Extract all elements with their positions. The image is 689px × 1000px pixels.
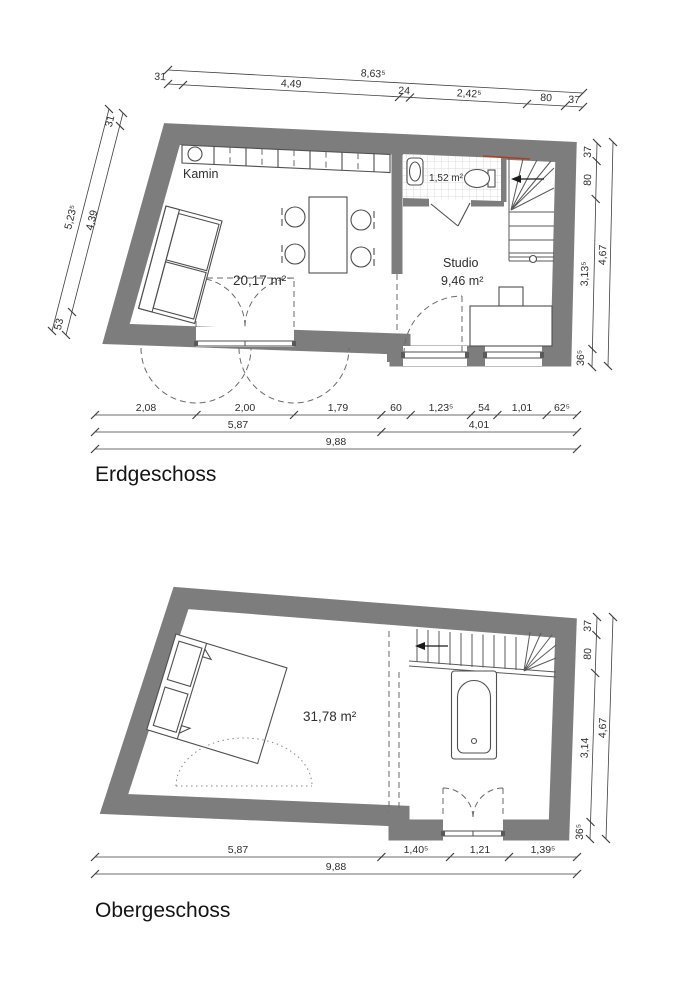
floor-plan-page: Kamin 20,17 m² Studio 9,46 m² 1,52 m² 8,… bbox=[0, 0, 689, 1000]
og-bathtub bbox=[452, 671, 497, 759]
room-label-bath-area: 1,52 m² bbox=[429, 173, 464, 184]
dim-label: 1,39⁵ bbox=[531, 844, 556, 856]
dim-label: 9,88 bbox=[326, 436, 347, 448]
floor-plan-drawing: Kamin 20,17 m² Studio 9,46 m² 1,52 m² 8,… bbox=[0, 0, 689, 1000]
dim-label: 37 bbox=[582, 620, 594, 632]
dim-label: 1,23⁵ bbox=[429, 402, 454, 414]
dim-label: 2,42⁵ bbox=[456, 87, 481, 100]
room-label-living-area: 20,17 m² bbox=[233, 273, 287, 288]
eg-dim-chain-bottom: 2,08 2,00 1,79 60 1,23⁵ 54 1,01 62⁵ 5,87… bbox=[91, 402, 581, 453]
obergeschoss-plan: 31,78 m² 37 80 3,14 4,67 36⁵ 5,87 1,40⁵ … bbox=[91, 598, 617, 922]
dim-label: 31 bbox=[103, 114, 118, 128]
dim-label: 5,87 bbox=[228, 419, 249, 431]
dim-label: 31 bbox=[154, 71, 166, 84]
dim-label: 5,23⁵ bbox=[62, 204, 80, 231]
dim-label: 54 bbox=[478, 402, 490, 414]
dim-label: 4,67 bbox=[597, 717, 610, 738]
room-label-og-area: 31,78 m² bbox=[303, 709, 357, 724]
eg-dim-chain-right: 37 80 3,13⁵ 4,67 36⁵ bbox=[575, 138, 617, 371]
dim-label: 9,88 bbox=[326, 861, 347, 873]
dining-table bbox=[309, 197, 347, 273]
dim-label: 2,00 bbox=[235, 402, 256, 414]
erdgeschoss-plan: Kamin 20,17 m² Studio 9,46 m² 1,52 m² 8,… bbox=[48, 66, 617, 486]
dim-label: 24 bbox=[398, 85, 410, 98]
room-label-kamin: Kamin bbox=[183, 167, 218, 181]
dim-label: 4,49 bbox=[281, 77, 302, 90]
dim-label: 80 bbox=[582, 648, 594, 660]
floor-title-erdgeschoss: Erdgeschoss bbox=[95, 463, 216, 486]
toilet bbox=[465, 170, 496, 188]
dim-label: 80 bbox=[540, 92, 552, 105]
dim-label: 37 bbox=[568, 94, 580, 107]
dim-label: 3,13⁵ bbox=[579, 261, 592, 286]
eg-dim-chain-top: 8,63⁵ 31 4,49 24 2,42⁵ 80 37 bbox=[154, 66, 587, 111]
dim-label: 3,14 bbox=[579, 737, 592, 758]
dim-label: 4,39 bbox=[84, 209, 101, 232]
dim-label: 62⁵ bbox=[554, 402, 570, 414]
floor-title-obergeschoss: Obergeschoss bbox=[95, 899, 230, 922]
dim-label: 36⁵ bbox=[575, 350, 588, 366]
dim-label: 1,40⁵ bbox=[404, 844, 429, 856]
dim-label: 60 bbox=[390, 402, 402, 414]
dim-label: 5,87 bbox=[228, 844, 249, 856]
dim-label: 8,63⁵ bbox=[360, 67, 385, 80]
stair-newel-post bbox=[530, 256, 537, 263]
og-dim-chain-bottom: 5,87 1,40⁵ 1,21 1,39⁵ 9,88 bbox=[91, 844, 581, 878]
dim-label: 80 bbox=[582, 174, 594, 186]
dim-label: 36⁵ bbox=[574, 824, 587, 840]
dim-label: 37 bbox=[582, 146, 594, 158]
dim-label: 2,08 bbox=[136, 402, 157, 414]
og-dim-chain-right: 37 80 3,14 4,67 36⁵ bbox=[574, 613, 617, 843]
dim-label: 1,21 bbox=[470, 844, 491, 856]
dim-label: 4,01 bbox=[469, 419, 490, 431]
dim-label: 4,67 bbox=[597, 244, 610, 265]
room-label-studio-area: 9,46 m² bbox=[441, 274, 483, 288]
dim-label: 53 bbox=[52, 317, 67, 331]
dim-label: 1,01 bbox=[512, 402, 533, 414]
dim-label: 1,79 bbox=[328, 402, 349, 414]
desk-chair bbox=[499, 287, 523, 306]
room-label-studio: Studio bbox=[443, 256, 478, 270]
